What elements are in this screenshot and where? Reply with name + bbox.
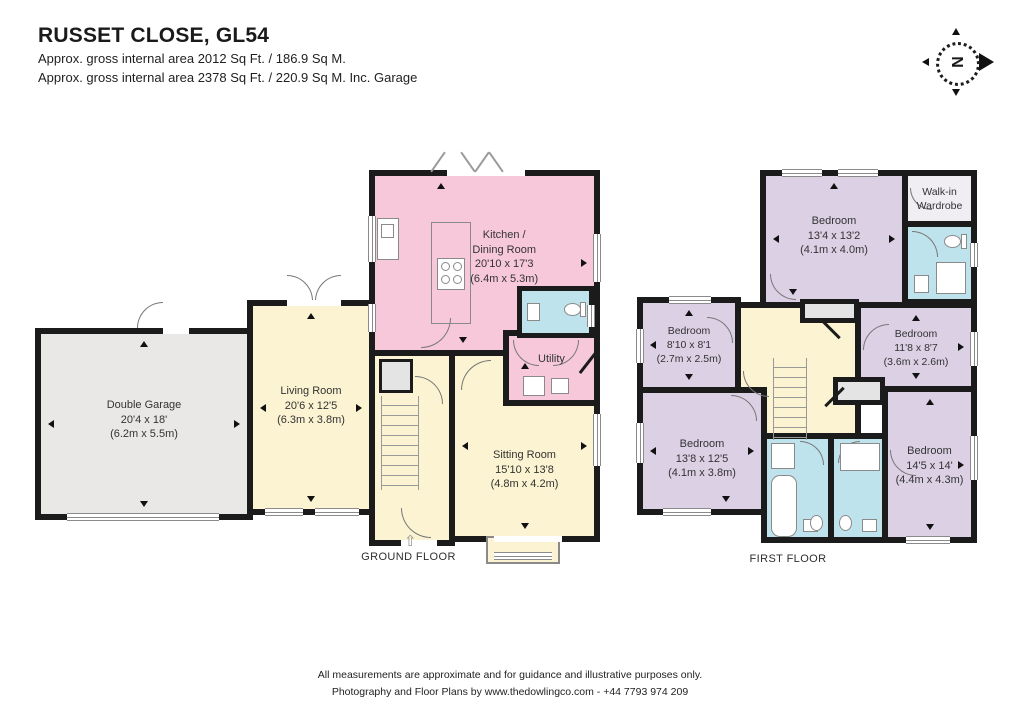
- room-label: Bedroom 8'10 x 8'1 (2.7m x 2.5m): [643, 325, 735, 367]
- room-label: Bedroom 11'8 x 8'7 (3.6m x 2.6m): [861, 328, 971, 370]
- dimension-marker: [912, 373, 920, 379]
- first-floor-label: FIRST FLOOR: [718, 553, 858, 565]
- basin-icon: [862, 519, 877, 532]
- door-arc: [800, 441, 824, 465]
- sink-bowl-icon: [381, 224, 394, 238]
- window: [663, 508, 711, 516]
- door-arc: [912, 231, 938, 257]
- dimension-marker: [437, 183, 445, 189]
- toilet-icon: [810, 515, 823, 531]
- ground-floor-label: GROUND FLOOR: [336, 551, 481, 563]
- room-label: Living Room 20'6 x 12'5 (6.3m x 3.8m): [253, 384, 369, 428]
- window: [906, 536, 950, 544]
- garage-door-window: [67, 513, 219, 521]
- window: [494, 552, 552, 560]
- window: [265, 508, 303, 516]
- room-label: Bedroom 14'5 x 14' (4.4m x 4.3m): [888, 444, 971, 488]
- room-label: Kitchen / Dining Room 20'10 x 17'3 (6.4m…: [414, 228, 594, 286]
- window: [970, 243, 978, 267]
- utility-sink-icon: [551, 378, 569, 394]
- toilet-icon: [839, 515, 852, 531]
- bath-icon: [771, 475, 797, 537]
- toilet-cistern-icon: [961, 234, 967, 249]
- credit-line: Photography and Floor Plans by www.thedo…: [0, 686, 1020, 698]
- room-label: Walk-in Wardrobe: [908, 186, 971, 214]
- dimension-marker: [140, 501, 148, 507]
- room-bedroom-1: Bedroom 13'4 x 13'2 (4.1m x 4.0m): [760, 170, 908, 308]
- dimension-marker: [140, 341, 148, 347]
- closet: [800, 299, 859, 323]
- hallway: [369, 350, 455, 546]
- room-ensuite-1: [902, 221, 977, 305]
- door-arc: [731, 395, 757, 421]
- window: [368, 304, 376, 332]
- room-shower-room: [828, 433, 888, 543]
- understairs-cupboard: [379, 359, 413, 393]
- basin-icon: [914, 275, 929, 293]
- room-label: Sitting Room 15'10 x 13'8 (4.8m x 4.2m): [455, 448, 594, 492]
- window: [669, 296, 711, 304]
- room-wc: [517, 286, 594, 338]
- door-arc: [415, 376, 443, 404]
- room-bedroom-2: Bedroom 8'10 x 8'1 (2.7m x 2.5m): [637, 297, 741, 393]
- room-label: Bedroom 13'8 x 12'5 (4.1m x 3.8m): [643, 437, 761, 481]
- door-arc: [770, 274, 796, 300]
- stairs: [381, 396, 419, 490]
- shower-icon: [771, 443, 795, 469]
- stairs: [773, 358, 807, 440]
- dimension-marker: [685, 374, 693, 380]
- window: [782, 169, 822, 177]
- window: [315, 508, 359, 516]
- basin-icon: [527, 303, 540, 321]
- dimension-marker: [521, 363, 529, 369]
- room-bathroom: [761, 433, 834, 543]
- room-label: Bedroom 13'4 x 13'2 (4.1m x 4.0m): [766, 214, 902, 258]
- window: [368, 216, 376, 262]
- disclaimer-line: All measurements are approximate and for…: [0, 669, 1020, 681]
- toilet-icon: [944, 235, 961, 248]
- room-bedroom-5: Bedroom 14'5 x 14' (4.4m x 4.3m): [882, 386, 977, 543]
- room-label: Double Garage 20'4 x 18' (6.2m x 5.5m): [41, 398, 247, 442]
- toilet-cistern-icon: [580, 302, 586, 317]
- dimension-marker: [307, 313, 315, 319]
- floorplan-page: RUSSET CLOSE, GL54 Approx. gross interna…: [0, 0, 1020, 720]
- room-bedroom-4: Bedroom 13'8 x 12'5 (4.1m x 3.8m): [637, 387, 767, 515]
- room-walk-in-wardrobe: Walk-in Wardrobe: [902, 170, 977, 227]
- window: [587, 305, 595, 327]
- bifold-door-opening: [447, 170, 525, 176]
- shower-icon: [840, 443, 880, 471]
- dimension-marker: [830, 183, 838, 189]
- french-door-opening: [287, 300, 341, 306]
- dimension-marker: [789, 289, 797, 295]
- dimension-marker: [722, 496, 730, 502]
- bay-opening: [494, 536, 562, 542]
- dimension-marker: [307, 496, 315, 502]
- dimension-marker: [459, 337, 467, 343]
- entrance-arrow-icon: ⇧: [404, 532, 417, 550]
- door-opening: [163, 328, 189, 334]
- dimension-marker: [521, 523, 529, 529]
- dimension-marker: [912, 315, 920, 321]
- toilet-icon: [564, 303, 581, 316]
- window: [838, 169, 878, 177]
- room-utility: Utility: [503, 330, 600, 406]
- window: [970, 332, 978, 366]
- window: [593, 414, 601, 466]
- dimension-marker: [926, 399, 934, 405]
- washing-machine-icon: [523, 376, 545, 396]
- shower-icon: [936, 262, 966, 294]
- dimension-marker: [685, 310, 693, 316]
- window: [593, 234, 601, 282]
- window: [970, 436, 978, 480]
- dimension-marker: [926, 524, 934, 530]
